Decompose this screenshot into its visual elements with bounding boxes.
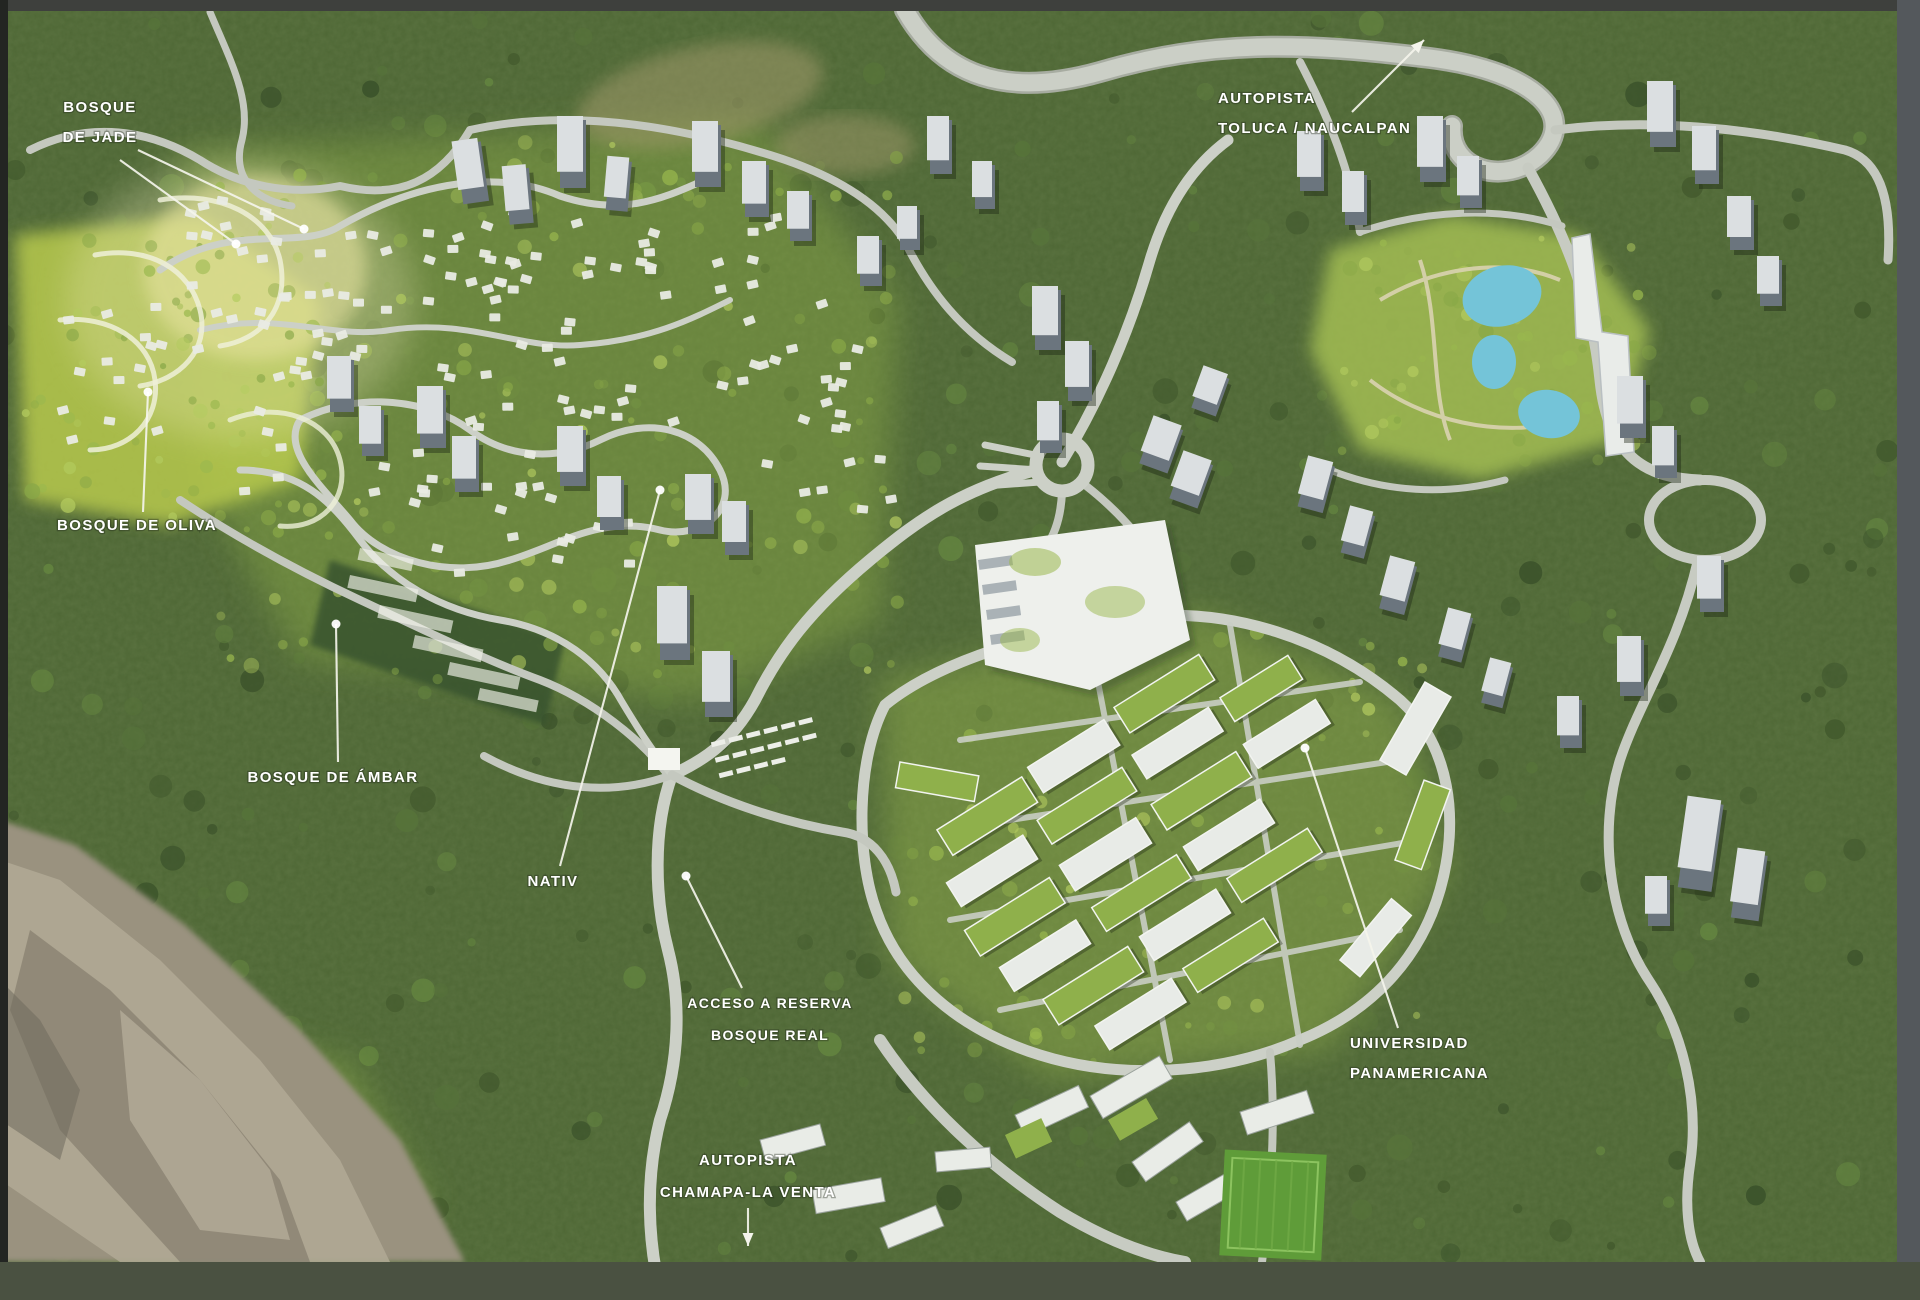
tower	[1457, 156, 1486, 213]
tower	[742, 161, 773, 222]
sports-field	[1219, 1149, 1326, 1260]
leader-dot	[144, 388, 153, 397]
tower	[897, 206, 924, 255]
label-text: DE JADE	[63, 129, 138, 146]
tower	[1417, 116, 1450, 187]
nativ-pavilion	[648, 748, 680, 770]
label-text: BOSQUE	[63, 99, 136, 116]
masterplan-aerial-render: BOSQUEDE JADEBOSQUE DE OLIVABOSQUE DE ÁM…	[0, 0, 1920, 1300]
tower	[857, 236, 886, 291]
tower	[1647, 81, 1680, 152]
tower	[1727, 196, 1758, 255]
leader-dot	[682, 872, 691, 881]
label-text: BOSQUE DE OLIVA	[57, 517, 217, 534]
leader-dot	[300, 225, 309, 234]
tower	[1697, 556, 1728, 617]
tower	[557, 426, 590, 491]
tower	[1065, 341, 1096, 406]
label-text: BOSQUE REAL	[711, 1027, 829, 1043]
tower	[1652, 426, 1681, 483]
tower	[1032, 286, 1065, 355]
tower	[597, 476, 628, 535]
tower	[972, 161, 999, 214]
tower	[1557, 696, 1586, 753]
tower	[1645, 876, 1674, 931]
tower	[452, 436, 483, 497]
label-text: AUTOPISTA	[1218, 90, 1316, 107]
tower	[359, 406, 388, 461]
tower	[557, 116, 590, 193]
label-text: ACCESO A RESERVA	[687, 995, 853, 1011]
tower	[702, 651, 737, 722]
tower	[602, 156, 636, 217]
label-text: UNIVERSIDAD	[1350, 1035, 1469, 1052]
tower	[1297, 131, 1328, 196]
tower	[1692, 126, 1723, 189]
tower	[1617, 376, 1650, 443]
leader-dot	[656, 486, 665, 495]
tower	[1037, 401, 1066, 458]
leader-dot	[332, 620, 341, 629]
tower	[685, 474, 718, 539]
label-text: CHAMAPA-LA VENTA	[660, 1184, 836, 1201]
frame-bottom	[0, 1262, 1920, 1300]
label-text: NATIV	[528, 873, 579, 890]
tower	[722, 501, 753, 560]
leader-dot	[1301, 744, 1310, 753]
frame-right	[1897, 0, 1920, 1300]
masterplan-canvas: BOSQUEDE JADEBOSQUE DE OLIVABOSQUE DE ÁM…	[0, 0, 1920, 1300]
frame-left	[0, 0, 8, 1300]
label-text: TOLUCA / NAUCALPAN	[1218, 120, 1411, 137]
frame-top	[0, 0, 1920, 11]
label-text: PANAMERICANA	[1350, 1065, 1489, 1082]
tower	[692, 121, 725, 192]
tower	[1757, 256, 1786, 311]
tower	[327, 356, 358, 417]
tower	[927, 116, 956, 179]
label-text: AUTOPISTA	[699, 1152, 797, 1169]
tower	[1342, 171, 1371, 230]
leader-dot	[232, 240, 241, 249]
tower	[787, 191, 816, 246]
tower	[657, 586, 694, 665]
pond-2	[1472, 335, 1516, 389]
tower	[417, 386, 450, 453]
label-text: BOSQUE DE ÁMBAR	[247, 769, 418, 786]
tower	[1617, 636, 1648, 701]
